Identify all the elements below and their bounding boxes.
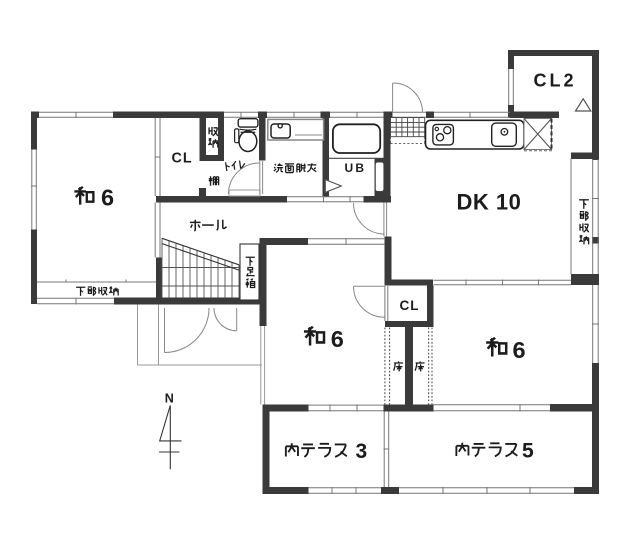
svg-text:CL: CL — [400, 298, 420, 313]
svg-text:3: 3 — [356, 440, 368, 463]
svg-text:N: N — [165, 392, 174, 406]
svg-text:CL2: CL2 — [534, 71, 577, 91]
svg-text:UB: UB — [345, 161, 367, 175]
svg-text:DK 10: DK 10 — [457, 190, 522, 215]
svg-text:5: 5 — [522, 440, 534, 463]
svg-text:CL: CL — [172, 150, 193, 166]
svg-text:6: 6 — [513, 337, 526, 363]
svg-text:6: 6 — [331, 326, 344, 352]
svg-text:6: 6 — [101, 184, 114, 210]
